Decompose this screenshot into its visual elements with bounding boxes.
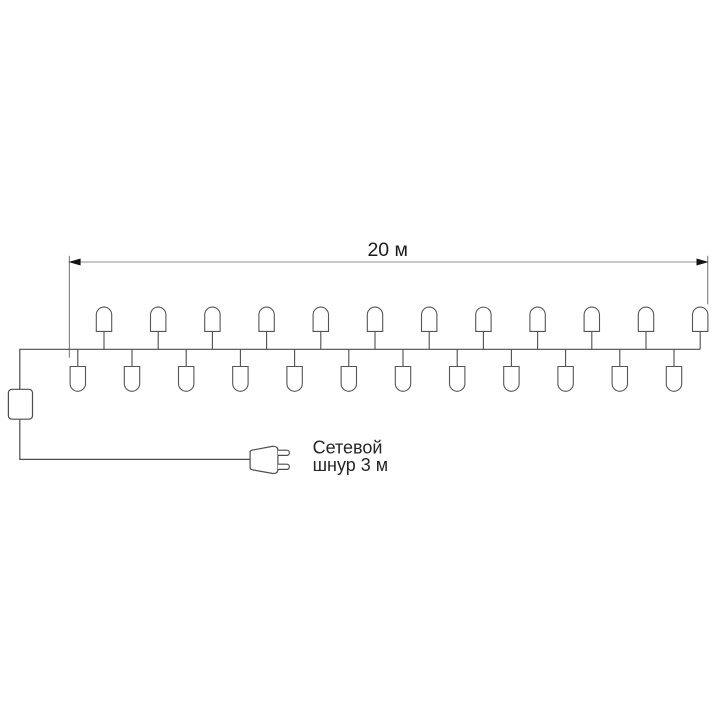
- svg-text:20 м: 20 м: [367, 239, 408, 261]
- svg-text:шнур 3 м: шнур 3 м: [313, 455, 389, 475]
